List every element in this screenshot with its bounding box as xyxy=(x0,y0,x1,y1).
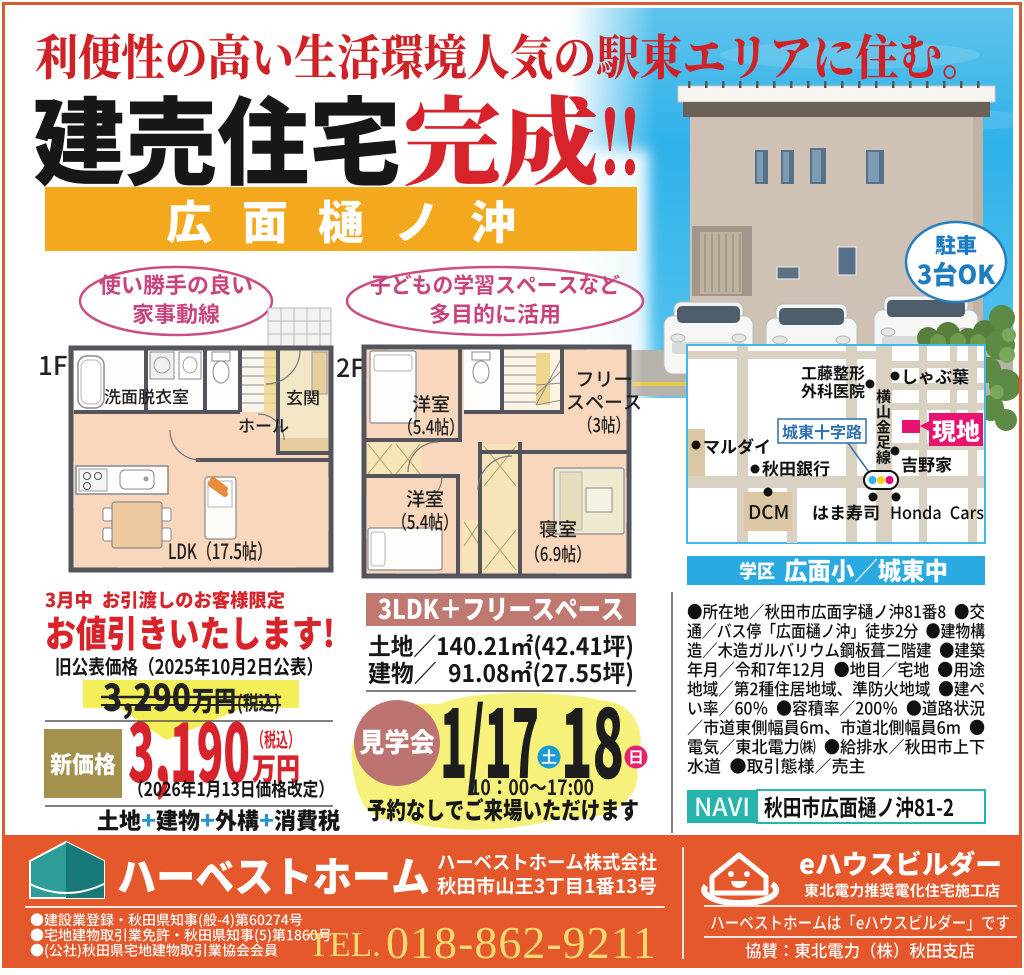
svg-text:TEL.: TEL. xyxy=(308,925,381,964)
svg-text:018-862-9211: 018-862-9211 xyxy=(386,917,657,968)
